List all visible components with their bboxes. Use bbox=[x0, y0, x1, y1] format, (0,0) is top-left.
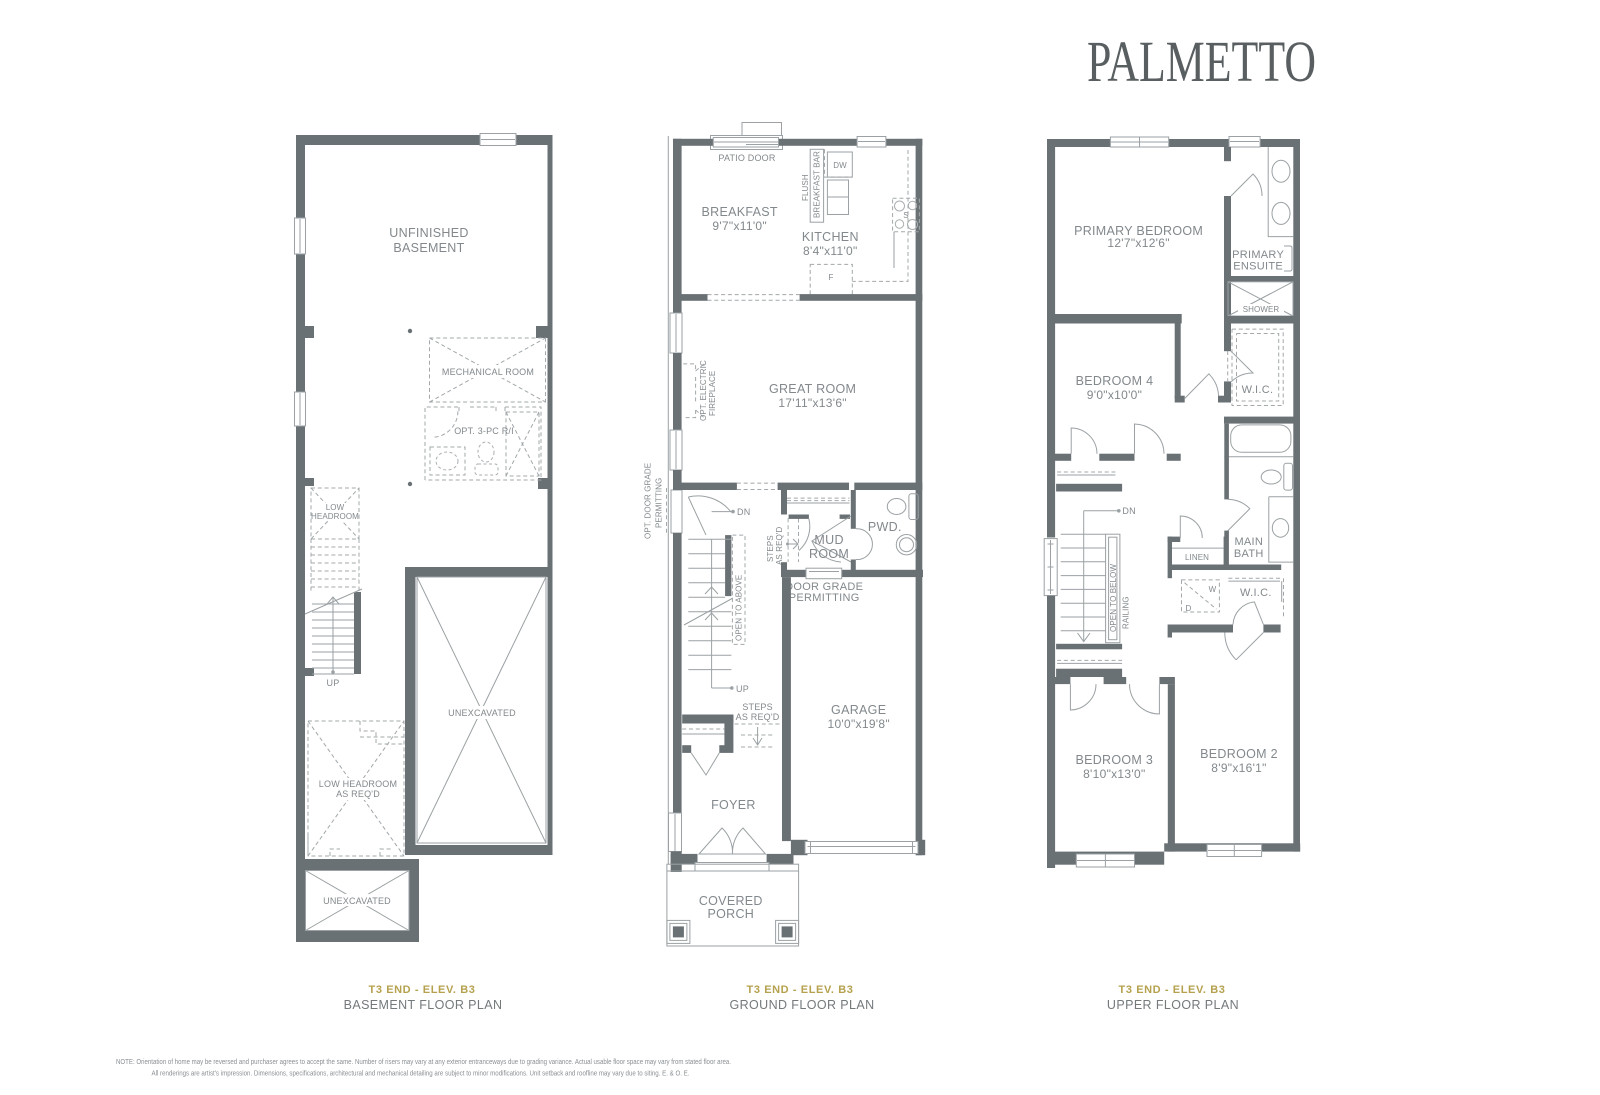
svg-text:OPT. DOOR GRADE: OPT. DOOR GRADE bbox=[644, 463, 653, 539]
svg-text:LINEN: LINEN bbox=[1185, 553, 1209, 562]
svg-text:MECHANICAL ROOM: MECHANICAL ROOM bbox=[442, 367, 534, 377]
svg-text:BEDROOM 2: BEDROOM 2 bbox=[1200, 747, 1278, 761]
svg-text:UNEXCAVATED: UNEXCAVATED bbox=[323, 896, 391, 906]
svg-text:DN: DN bbox=[737, 507, 750, 517]
svg-text:COVERED: COVERED bbox=[699, 894, 763, 908]
svg-text:KITCHEN: KITCHEN bbox=[802, 230, 859, 244]
svg-text:W.I.C.: W.I.C. bbox=[1240, 587, 1272, 599]
svg-text:GROUND FLOOR PLAN: GROUND FLOOR PLAN bbox=[729, 998, 874, 1012]
svg-text:10'0"x19'8": 10'0"x19'8" bbox=[827, 717, 889, 731]
svg-text:GREAT ROOM: GREAT ROOM bbox=[769, 382, 856, 396]
svg-text:8'9"x16'1": 8'9"x16'1" bbox=[1211, 761, 1266, 775]
svg-text:BASEMENT FLOOR PLAN: BASEMENT FLOOR PLAN bbox=[344, 998, 503, 1012]
svg-text:BEDROOM 4: BEDROOM 4 bbox=[1076, 374, 1154, 388]
svg-text:AS REQ'D: AS REQ'D bbox=[775, 527, 784, 565]
svg-text:GARAGE: GARAGE bbox=[831, 703, 886, 717]
svg-text:UP: UP bbox=[327, 678, 340, 688]
svg-text:OPEN TO BELOW: OPEN TO BELOW bbox=[1109, 564, 1118, 632]
svg-text:AS REQ'D: AS REQ'D bbox=[336, 789, 380, 799]
svg-text:HEADROOM: HEADROOM bbox=[311, 512, 359, 521]
svg-text:NOTE: Orientation of home may: NOTE: Orientation of home may be reverse… bbox=[116, 1057, 731, 1066]
svg-text:PERMITTING: PERMITTING bbox=[789, 592, 860, 604]
svg-text:All renderings are artist's im: All renderings are artist's impression. … bbox=[152, 1069, 690, 1078]
svg-text:BREAKFAST BAR: BREAKFAST BAR bbox=[813, 151, 822, 218]
svg-text:FOYER: FOYER bbox=[711, 798, 756, 812]
svg-text:OPT. 3-PC R/I: OPT. 3-PC R/I bbox=[454, 426, 514, 436]
svg-text:LOW HEADROOM: LOW HEADROOM bbox=[319, 779, 397, 789]
svg-text:FIREPLACE: FIREPLACE bbox=[708, 371, 717, 416]
svg-text:T3 END - ELEV. B3: T3 END - ELEV. B3 bbox=[747, 984, 854, 996]
svg-text:9'7"x11'0": 9'7"x11'0" bbox=[712, 219, 767, 233]
svg-text:ENSUITE: ENSUITE bbox=[1233, 261, 1283, 273]
svg-text:MUD: MUD bbox=[814, 533, 843, 547]
svg-text:OPT. ELECTRIC: OPT. ELECTRIC bbox=[699, 360, 708, 421]
svg-text:12'7"x12'6": 12'7"x12'6" bbox=[1107, 236, 1169, 250]
svg-text:ROOM: ROOM bbox=[809, 547, 849, 561]
svg-text:SHOWER: SHOWER bbox=[1243, 305, 1280, 314]
svg-text:UNFINISHED: UNFINISHED bbox=[389, 226, 468, 240]
svg-text:PERMITTING: PERMITTING bbox=[655, 478, 664, 528]
svg-text:DW: DW bbox=[833, 161, 847, 170]
svg-text:AS REQ'D: AS REQ'D bbox=[736, 712, 780, 722]
svg-text:STEPS: STEPS bbox=[742, 702, 773, 712]
svg-text:PWD.: PWD. bbox=[868, 520, 902, 534]
svg-text:BREAKFAST: BREAKFAST bbox=[702, 205, 778, 219]
svg-text:PORCH: PORCH bbox=[707, 907, 754, 921]
svg-text:MAIN: MAIN bbox=[1234, 536, 1263, 548]
svg-text:UP: UP bbox=[736, 684, 749, 694]
svg-text:T3 END - ELEV. B3: T3 END - ELEV. B3 bbox=[1119, 984, 1226, 996]
svg-text:17'11"x13'6": 17'11"x13'6" bbox=[778, 396, 847, 410]
svg-text:8'4"x11'0": 8'4"x11'0" bbox=[803, 244, 858, 258]
svg-text:F: F bbox=[829, 273, 834, 282]
svg-text:RAILING: RAILING bbox=[1122, 596, 1131, 629]
svg-text:LOW: LOW bbox=[326, 503, 345, 512]
svg-text:W: W bbox=[1209, 585, 1217, 594]
svg-text:9'0"x10'0": 9'0"x10'0" bbox=[1087, 388, 1142, 402]
svg-text:UPPER FLOOR PLAN: UPPER FLOOR PLAN bbox=[1107, 998, 1239, 1012]
svg-text:D: D bbox=[1186, 604, 1192, 613]
svg-text:PATIO DOOR: PATIO DOOR bbox=[718, 153, 775, 163]
svg-text:PRIMARY: PRIMARY bbox=[1232, 249, 1284, 261]
svg-text:OPEN TO ABOVE: OPEN TO ABOVE bbox=[735, 575, 744, 641]
svg-text:BATH: BATH bbox=[1234, 548, 1264, 560]
svg-text:PALMETTO: PALMETTO bbox=[1087, 29, 1316, 94]
svg-text:T3 END - ELEV. B3: T3 END - ELEV. B3 bbox=[369, 984, 476, 996]
svg-text:BASEMENT: BASEMENT bbox=[393, 241, 464, 255]
svg-text:STEPS: STEPS bbox=[766, 535, 775, 562]
svg-text:8'10"x13'0": 8'10"x13'0" bbox=[1083, 767, 1145, 781]
svg-text:BEDROOM 3: BEDROOM 3 bbox=[1075, 753, 1153, 767]
svg-text:UNEXCAVATED: UNEXCAVATED bbox=[448, 708, 516, 718]
svg-text:DN: DN bbox=[1122, 506, 1135, 516]
svg-text:W.I.C.: W.I.C. bbox=[1242, 384, 1274, 396]
svg-text:FLUSH: FLUSH bbox=[801, 174, 810, 201]
